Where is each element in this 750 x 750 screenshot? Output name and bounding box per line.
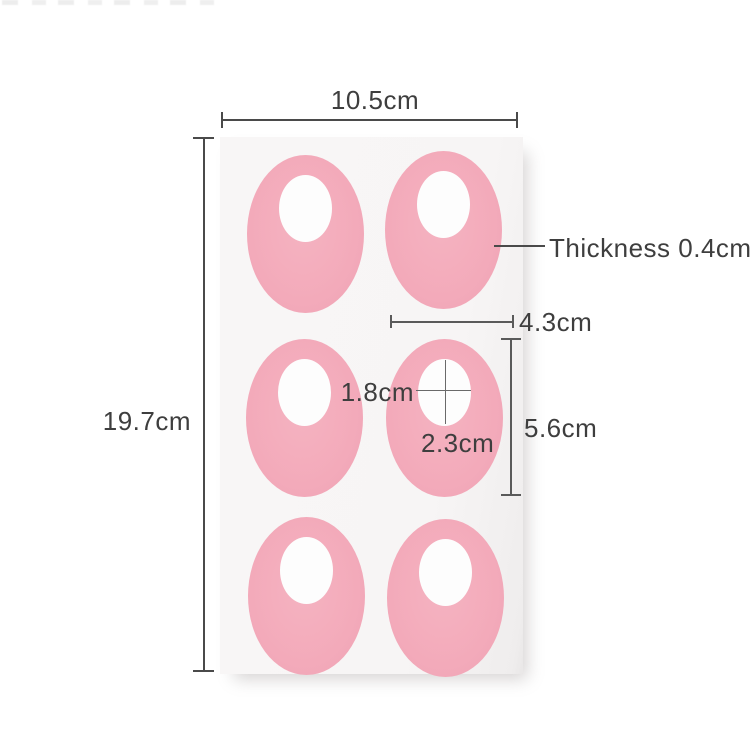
pad-hole bbox=[278, 359, 331, 426]
pad-height-label: 5.6cm bbox=[524, 415, 597, 441]
product-diagram: 10.5cm 19.7cm Thickness 0.4cm 4.3cm 5.6c… bbox=[0, 0, 750, 750]
sheet-height-dim-tick-top bbox=[193, 137, 214, 139]
pad-height-dim-line bbox=[510, 339, 512, 495]
sheet-width-dim-tick-left bbox=[221, 112, 223, 128]
sheet-height-label: 19.7cm bbox=[103, 408, 191, 434]
adhesive-pad bbox=[248, 517, 365, 675]
hole-width-crosshair-line bbox=[416, 390, 471, 391]
hole-height-label: 2.3cm bbox=[421, 430, 494, 456]
pad-hole bbox=[419, 539, 472, 606]
pad-width-dim-line bbox=[391, 321, 513, 323]
sheet-width-label: 10.5cm bbox=[331, 87, 419, 113]
sheet-width-dim-line bbox=[222, 119, 518, 121]
sheet-width-dim-tick-right bbox=[516, 112, 518, 128]
pad-width-label: 4.3cm bbox=[519, 309, 592, 335]
thickness-label: Thickness 0.4cm bbox=[549, 235, 750, 261]
pad-hole bbox=[279, 175, 332, 242]
pad-height-dim-tick-bottom bbox=[501, 494, 521, 496]
pad-width-dim-tick-left bbox=[390, 315, 392, 328]
pad-width-dim-tick-right bbox=[512, 315, 514, 328]
adhesive-pad bbox=[247, 155, 364, 313]
sheet-height-dim-line bbox=[203, 137, 205, 672]
hole-width-label: 1.8cm bbox=[341, 379, 414, 405]
sheet-height-dim-tick-bottom bbox=[193, 670, 214, 672]
pad-hole bbox=[417, 171, 470, 238]
adhesive-pad bbox=[387, 519, 504, 677]
adhesive-pad bbox=[246, 339, 363, 497]
hole-height-crosshair-line bbox=[445, 360, 446, 424]
thickness-leader-line bbox=[494, 245, 545, 247]
pad-hole bbox=[280, 537, 333, 604]
cropped-text-artifact bbox=[2, 0, 214, 5]
pad-height-dim-tick-top bbox=[501, 338, 521, 340]
adhesive-pad bbox=[385, 151, 502, 309]
